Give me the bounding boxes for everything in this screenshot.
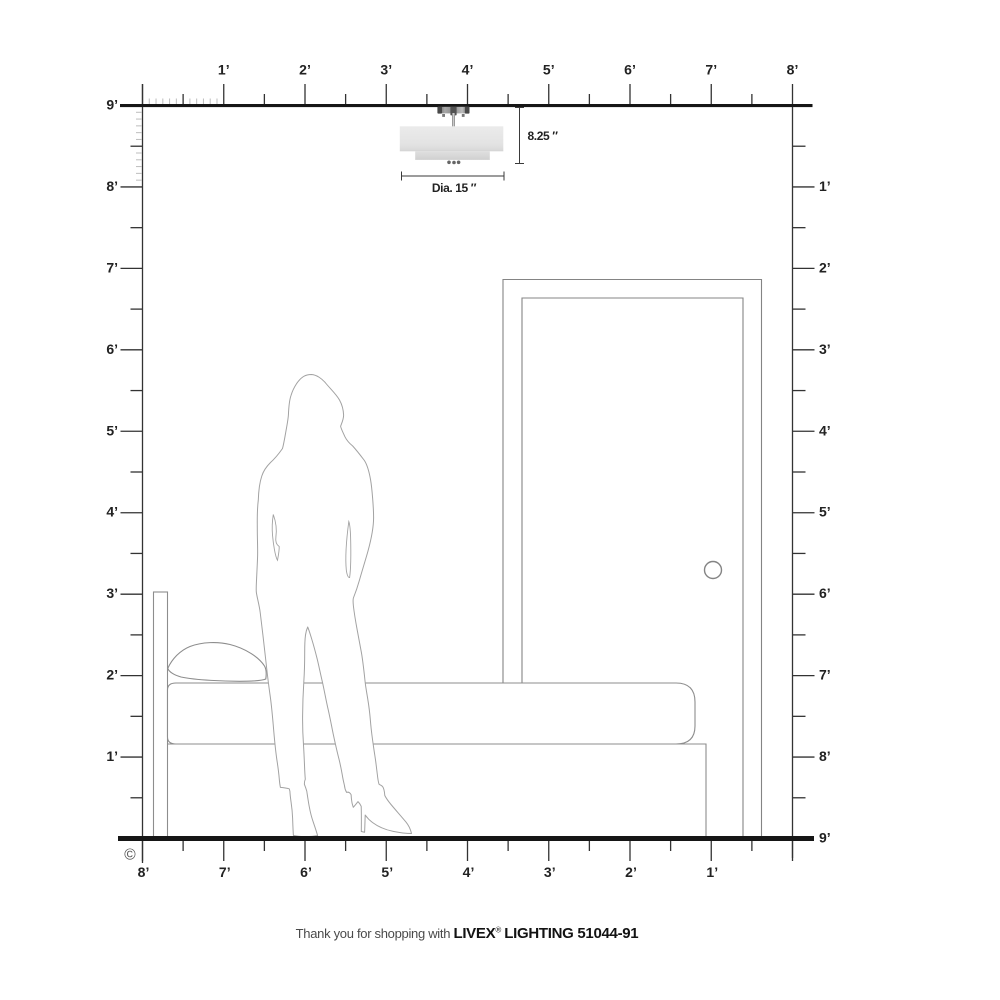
svg-text:8’: 8’ bbox=[819, 748, 831, 764]
svg-text:2’: 2’ bbox=[106, 667, 118, 683]
svg-text:4’: 4’ bbox=[463, 864, 475, 880]
svg-text:1’: 1’ bbox=[106, 748, 118, 764]
svg-text:5’: 5’ bbox=[819, 504, 831, 520]
svg-text:6’: 6’ bbox=[300, 864, 312, 880]
svg-text:8.25 ″: 8.25 ″ bbox=[528, 129, 559, 143]
svg-text:4’: 4’ bbox=[819, 422, 831, 438]
svg-text:5’: 5’ bbox=[543, 62, 555, 78]
svg-text:8’: 8’ bbox=[138, 864, 150, 880]
svg-text:2’: 2’ bbox=[819, 259, 831, 275]
svg-text:5’: 5’ bbox=[106, 422, 118, 438]
svg-text:1’: 1’ bbox=[218, 62, 230, 78]
svg-text:9’: 9’ bbox=[819, 830, 831, 846]
svg-text:7’: 7’ bbox=[106, 259, 118, 275]
svg-text:3’: 3’ bbox=[380, 62, 392, 78]
svg-text:1’: 1’ bbox=[819, 178, 831, 194]
svg-text:5’: 5’ bbox=[381, 864, 393, 880]
svg-text:8’: 8’ bbox=[787, 62, 799, 78]
svg-text:Dia. 15 ″: Dia. 15 ″ bbox=[432, 181, 477, 195]
svg-text:©: © bbox=[124, 847, 136, 864]
svg-text:6’: 6’ bbox=[819, 585, 831, 601]
svg-text:7’: 7’ bbox=[705, 62, 717, 78]
svg-text:3’: 3’ bbox=[544, 864, 556, 880]
svg-text:9’: 9’ bbox=[106, 97, 118, 113]
svg-text:8’: 8’ bbox=[106, 178, 118, 194]
svg-text:2’: 2’ bbox=[299, 62, 311, 78]
svg-text:3’: 3’ bbox=[819, 341, 831, 357]
svg-text:1’: 1’ bbox=[706, 864, 718, 880]
svg-text:4’: 4’ bbox=[462, 62, 474, 78]
svg-text:7’: 7’ bbox=[819, 667, 831, 683]
svg-text:2’: 2’ bbox=[625, 864, 637, 880]
svg-text:3’: 3’ bbox=[106, 585, 118, 601]
svg-text:7’: 7’ bbox=[219, 864, 231, 880]
svg-text:6’: 6’ bbox=[624, 62, 636, 78]
svg-text:4’: 4’ bbox=[106, 504, 118, 520]
svg-text:6’: 6’ bbox=[106, 341, 118, 357]
